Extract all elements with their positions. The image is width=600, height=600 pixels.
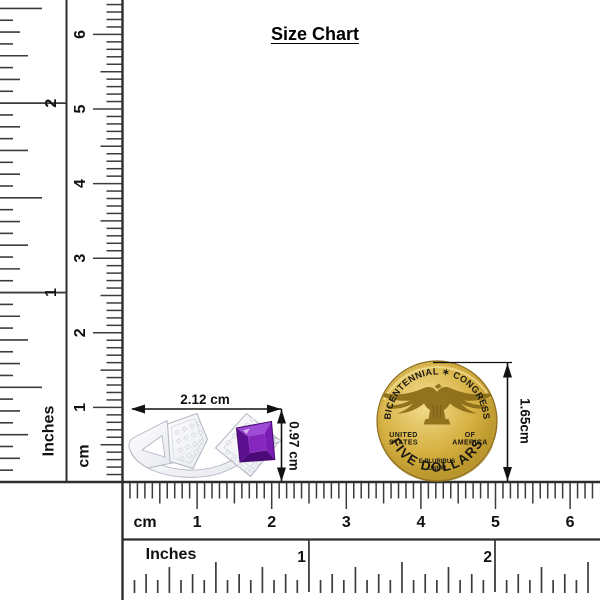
ring-split-shank — [129, 421, 173, 469]
ruler-number: 1 — [72, 403, 89, 412]
arrow-up-icon — [277, 410, 286, 424]
ruler-bottom-inches: 12 — [134, 540, 588, 593]
coin-states-text: STATES — [389, 440, 418, 447]
ruler-number: 4 — [72, 179, 89, 188]
ruler-number: 2 — [483, 549, 492, 566]
bottom-cm-ruler-label: cm — [133, 514, 156, 531]
ruler-number: 6 — [566, 514, 575, 531]
ruler-number: 5 — [72, 104, 89, 113]
ruler-number: 1 — [297, 549, 306, 566]
arrow-right-icon — [267, 405, 281, 414]
ruler-number: 4 — [416, 514, 425, 531]
coin-motto-line2: UNUM — [428, 466, 446, 472]
ruler-bottom-cm: 123456 — [130, 483, 593, 531]
coin-of-text: OF — [465, 432, 476, 439]
ring-width-label: 2.12 cm — [180, 392, 230, 407]
left-inches-ruler-label: Inches — [41, 406, 58, 457]
coin-america-text: AMERICA — [452, 440, 487, 447]
coin-motto-line1: E PLURIBUS — [419, 459, 455, 465]
ruler-number: 5 — [491, 514, 500, 531]
left-cm-ruler-label: cm — [76, 444, 93, 467]
coin-diameter-label: 1.65cm — [518, 398, 533, 444]
ruler-number: 6 — [72, 30, 89, 39]
ruler-number: 3 — [342, 514, 351, 531]
arrow-up-icon — [503, 364, 512, 378]
arrow-down-icon — [503, 467, 512, 481]
bottom-inches-ruler-label: Inches — [146, 546, 197, 563]
ruler-number: 1 — [43, 288, 60, 297]
coin-illustration: BICENTENNIAL ✶ CONGRESS FIVE DOLLARS UNI… — [377, 361, 497, 481]
size-chart-page: Size Chart 12 123456 123456 12 Inches cm… — [0, 0, 600, 600]
ruler-number: 2 — [72, 328, 89, 337]
amethyst-stone — [237, 422, 283, 463]
arrow-down-icon — [277, 468, 286, 482]
ruler-number: 1 — [193, 514, 202, 531]
ruler-frame-lines — [0, 0, 600, 600]
arrow-left-icon — [131, 405, 145, 414]
ruler-left-cm: 123456 — [72, 5, 122, 475]
ring-illustration — [129, 414, 282, 478]
ruler-number: 2 — [267, 514, 276, 531]
ruler-number: 2 — [43, 99, 60, 108]
coin-united-text: UNITED — [389, 432, 417, 439]
amethyst-table — [248, 434, 267, 454]
ruler-number: 3 — [72, 254, 89, 263]
size-chart-scene: 12 123456 123456 12 Inches cm cm Inches — [0, 0, 600, 600]
ruler-left-inches: 12 — [0, 8, 67, 470]
ring-height-label: 0.97 cm — [287, 421, 302, 471]
